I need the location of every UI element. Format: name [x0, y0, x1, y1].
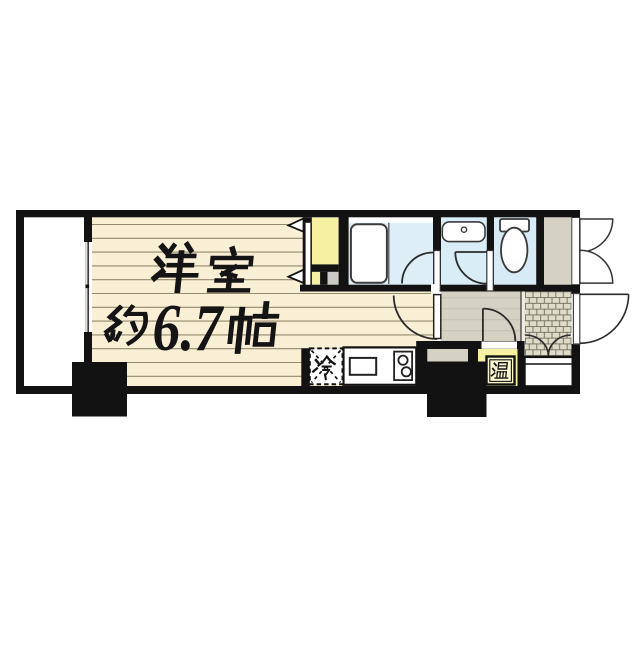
svg-text:6.7: 6.7: [153, 291, 225, 365]
